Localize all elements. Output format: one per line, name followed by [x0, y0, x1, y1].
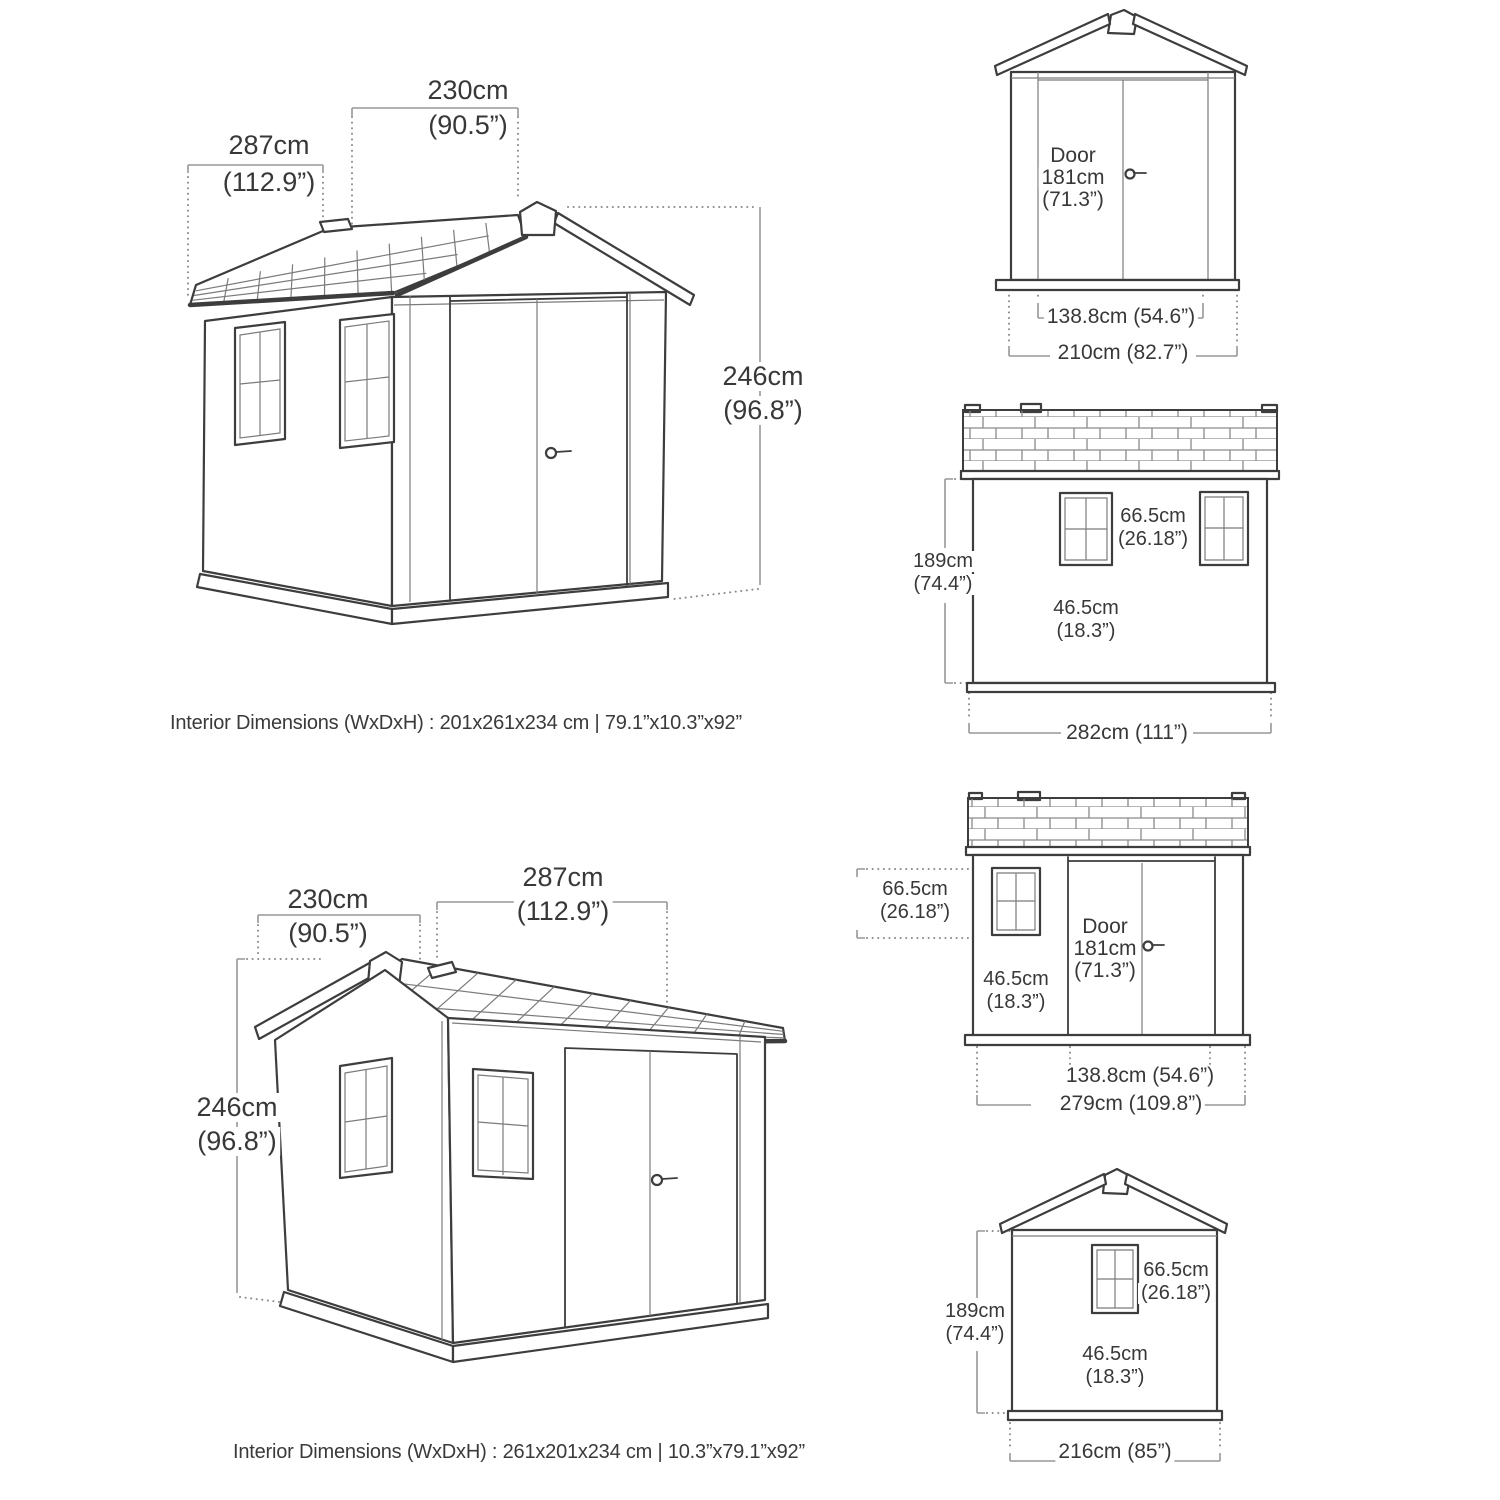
dim-height-cm: 246cm	[719, 362, 806, 391]
base-trim	[1008, 1411, 1222, 1420]
perspective-view-side: 230cm (90.5”) 287cm (112.9”) 246cm (96.8…	[180, 855, 870, 1415]
window-width-in: (18.3”)	[984, 992, 1049, 1013]
door-handle	[546, 448, 556, 458]
door-handle	[1144, 942, 1153, 951]
dim-width-cm: 230cm	[424, 76, 511, 105]
perspective-side-drawing	[180, 855, 870, 1415]
shed-dimensions-diagram: { "colors": { "background": "#ffffff", "…	[0, 0, 1500, 1500]
door-height-in: (71.3”)	[1039, 189, 1107, 211]
roof-lip	[966, 847, 1250, 855]
height-cm: 189cm	[910, 551, 976, 572]
door-height-in: (71.3”)	[1071, 960, 1139, 982]
dim-depth-cm: 287cm	[519, 863, 606, 892]
overall-width: 279cm (109.8”)	[1057, 1093, 1205, 1115]
dim-width-in: (90.5”)	[425, 111, 511, 140]
door-label: Door	[1047, 145, 1099, 167]
door-handle	[652, 1175, 662, 1185]
window-height-in: (26.18”)	[1138, 1283, 1214, 1304]
door-handle	[1126, 170, 1135, 179]
dim-width-in: (90.5”)	[285, 919, 371, 948]
interior-dimensions-top: Interior Dimensions (WxDxH) : 201x261x23…	[170, 712, 742, 735]
window-height-cm: 66.5cm	[1140, 1260, 1212, 1281]
window-width-in: (18.3”)	[1083, 1367, 1148, 1388]
roof-shingle-band	[963, 410, 1277, 471]
door-height-cm: 181cm	[1070, 938, 1139, 960]
roof-lip	[961, 471, 1279, 479]
height-in: (74.4”)	[911, 574, 976, 595]
dim-width-cm: 230cm	[284, 885, 371, 914]
window-height-in: (26.18”)	[877, 902, 953, 923]
window-height-cm: 66.5cm	[1117, 506, 1189, 527]
door-height-cm: 181cm	[1038, 167, 1107, 189]
height-in: (74.4”)	[943, 1324, 1008, 1345]
height-cm: 189cm	[942, 1301, 1008, 1322]
ridge-vent-tab	[320, 219, 352, 232]
front-wall	[392, 292, 666, 606]
base-trim	[996, 280, 1239, 290]
side-elevation-door: 66.5cm (26.18”) 46.5cm (18.3”) Door 181c…	[855, 785, 1345, 1150]
perspective-view-front: 230cm (90.5”) 287cm (112.9”) 246cm (96.8…	[170, 65, 820, 645]
interior-dimensions-bottom: Interior Dimensions (WxDxH) : 261x201x23…	[233, 1441, 805, 1464]
door-width: 138.8cm (54.6”)	[1063, 1065, 1217, 1087]
dim-depth-cm: 287cm	[225, 131, 312, 160]
front-elevation-window: 189cm (74.4”) 66.5cm (26.18”) 46.5cm (18…	[930, 1165, 1350, 1500]
window-width-cm: 46.5cm	[1079, 1344, 1151, 1365]
base-trim	[967, 683, 1275, 692]
dim-height-in: (96.8”)	[194, 1127, 280, 1156]
overall-width: 216cm (85”)	[1055, 1441, 1174, 1463]
window-height-in: (26.18”)	[1115, 529, 1191, 550]
door-label: Door	[1079, 916, 1131, 938]
side-elevation: 189cm (74.4”) 66.5cm (26.18”) 46.5cm (18…	[905, 395, 1345, 755]
base-trim	[965, 1035, 1250, 1045]
long-wall	[448, 1018, 765, 1343]
door-width: 138.8cm (54.6”)	[1044, 306, 1198, 328]
gable-right-band	[554, 213, 694, 305]
overall-width: 282cm (111”)	[1063, 722, 1191, 744]
dim-height-cm: 246cm	[193, 1093, 280, 1122]
dim-height-in: (96.8”)	[720, 396, 806, 425]
window-width-in: (18.3”)	[1054, 621, 1119, 642]
shed-3d-front	[190, 202, 694, 624]
dim-depth-in: (112.9”)	[514, 897, 613, 926]
window-height-cm: 66.5cm	[879, 879, 951, 900]
overall-width: 210cm (82.7”)	[1055, 342, 1192, 364]
dim-depth-in: (112.9”)	[220, 168, 319, 197]
shed-3d-side	[255, 952, 785, 1362]
window-width-cm: 46.5cm	[980, 969, 1052, 990]
window-width-cm: 46.5cm	[1050, 598, 1122, 619]
shed-front	[995, 10, 1247, 290]
front-elevation-door: Door 181cm (71.3”) 138.8cm (54.6”) 210cm…	[940, 8, 1350, 373]
ridge-cap	[520, 202, 556, 235]
roof-shingle-band	[968, 798, 1248, 847]
